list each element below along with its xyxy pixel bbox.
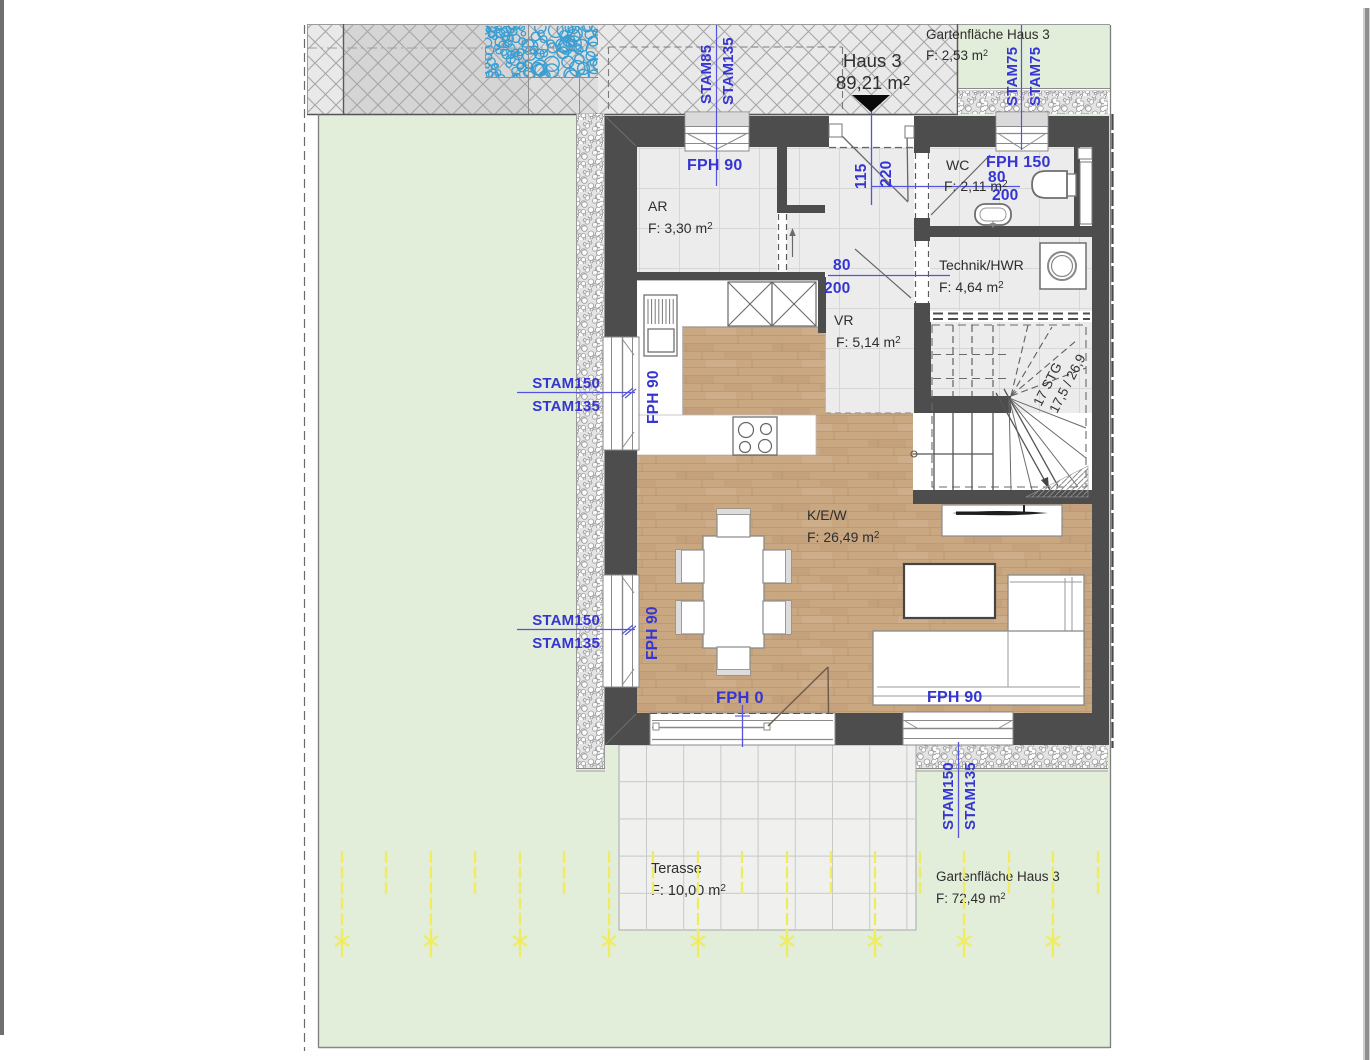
svg-text:80: 80 <box>833 257 851 274</box>
svg-text:Gartenfläche Haus 3: Gartenfläche Haus 3 <box>926 27 1050 42</box>
svg-text:STAM75: STAM75 <box>1004 47 1021 106</box>
svg-text:AR: AR <box>648 198 667 214</box>
svg-text:STAM135: STAM135 <box>962 762 979 830</box>
svg-text:F: 26,49 m2: F: 26,49 m2 <box>807 529 880 545</box>
svg-text:FPH 90: FPH 90 <box>927 689 982 706</box>
svg-text:F: 5,14 m2: F: 5,14 m2 <box>836 334 901 350</box>
svg-text:STAM150: STAM150 <box>532 612 600 629</box>
svg-text:FPH 90: FPH 90 <box>644 606 661 660</box>
svg-text:STAM85: STAM85 <box>698 45 715 104</box>
svg-text:STAM150: STAM150 <box>532 375 600 392</box>
svg-text:F: 72,49 m2: F: 72,49 m2 <box>936 891 1006 906</box>
svg-text:220: 220 <box>878 161 895 187</box>
svg-text:FPH 90: FPH 90 <box>645 370 662 424</box>
svg-text:Technik/HWR: Technik/HWR <box>939 257 1024 273</box>
svg-text:STAM75: STAM75 <box>1027 47 1044 106</box>
svg-text:200: 200 <box>992 187 1018 204</box>
svg-text:Haus 3: Haus 3 <box>843 50 902 71</box>
svg-text:F: 4,64 m2: F: 4,64 m2 <box>939 279 1004 295</box>
svg-text:200: 200 <box>824 280 850 297</box>
svg-text:FPH 0: FPH 0 <box>716 689 764 707</box>
svg-text:VR: VR <box>834 312 853 328</box>
svg-text:80: 80 <box>988 169 1006 186</box>
svg-text:STAM135: STAM135 <box>532 635 600 652</box>
svg-text:F: 3,30 m2: F: 3,30 m2 <box>648 220 713 236</box>
svg-text:STAM135: STAM135 <box>720 37 737 105</box>
svg-text:K/E/W: K/E/W <box>807 507 847 523</box>
svg-text:115: 115 <box>853 163 870 189</box>
svg-text:Terasse: Terasse <box>651 861 702 877</box>
svg-text:WC: WC <box>946 157 969 173</box>
svg-text:STAM150: STAM150 <box>940 762 957 830</box>
svg-text:F: 10,00 m2: F: 10,00 m2 <box>651 883 726 899</box>
svg-text:FPH 90: FPH 90 <box>687 157 742 174</box>
svg-text:F: 2,53 m2: F: 2,53 m2 <box>926 48 988 63</box>
svg-text:89,21 m2: 89,21 m2 <box>836 72 910 93</box>
svg-text:Gartenfläche Haus 3: Gartenfläche Haus 3 <box>936 869 1060 884</box>
svg-text:STAM135: STAM135 <box>532 398 600 415</box>
